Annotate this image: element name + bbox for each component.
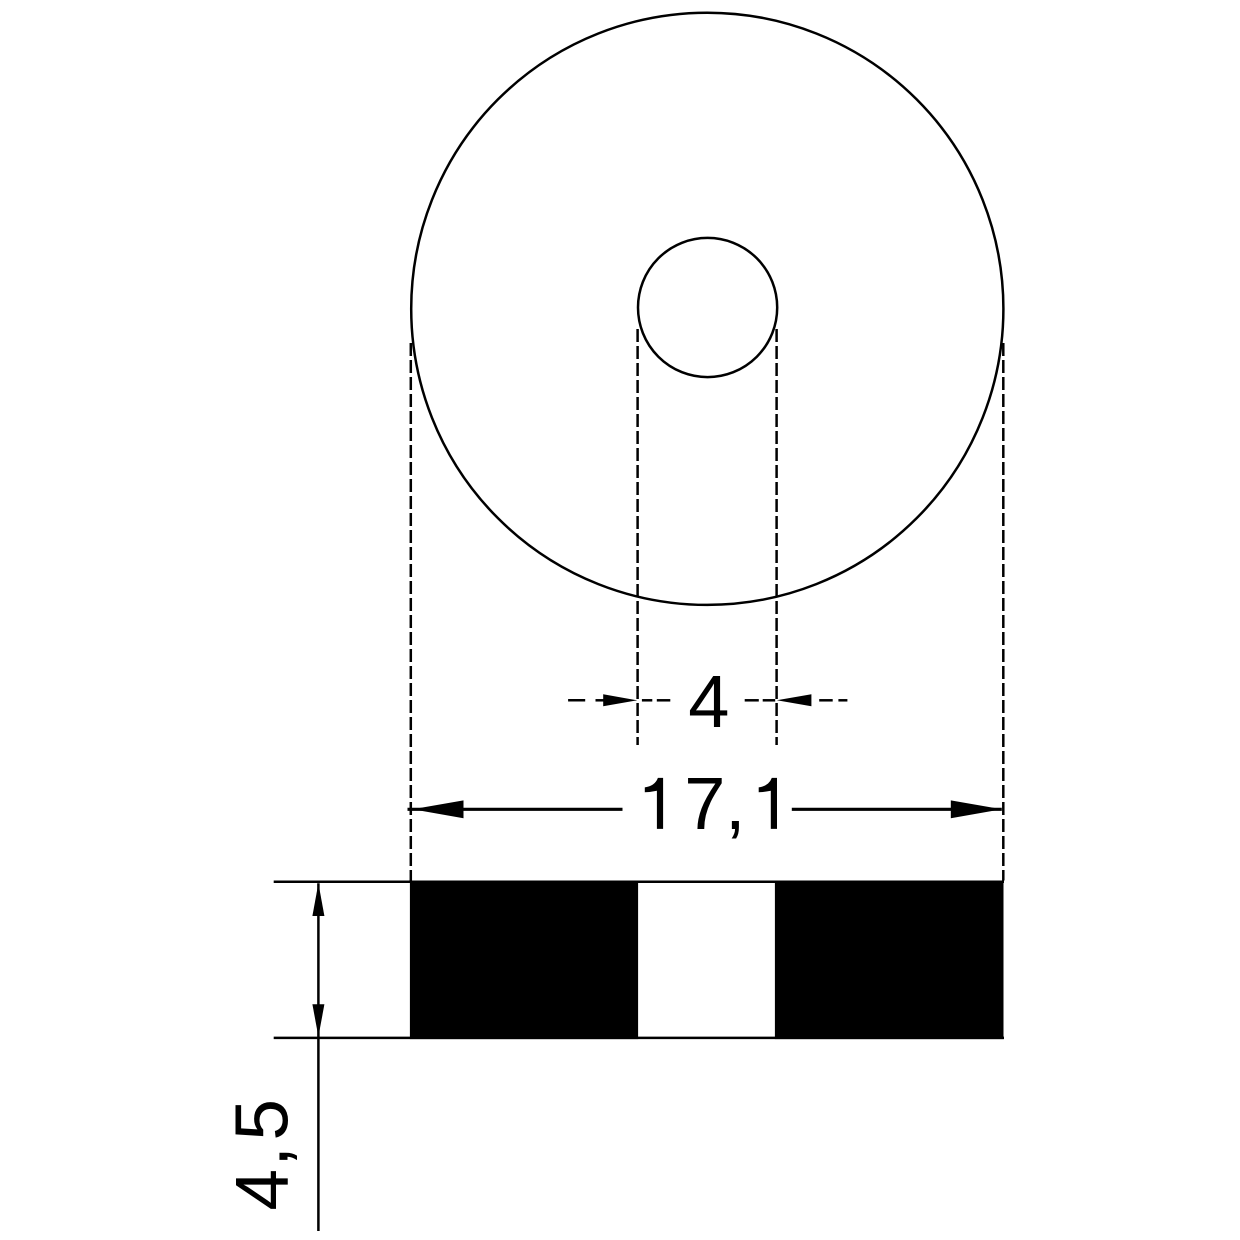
svg-text:4: 4 — [688, 660, 729, 743]
svg-text:,: , — [725, 762, 746, 845]
svg-text:7: 7 — [684, 762, 725, 845]
svg-text:,: , — [220, 1146, 304, 1167]
svg-text:4: 4 — [220, 1169, 304, 1211]
svg-text:5: 5 — [220, 1099, 304, 1141]
